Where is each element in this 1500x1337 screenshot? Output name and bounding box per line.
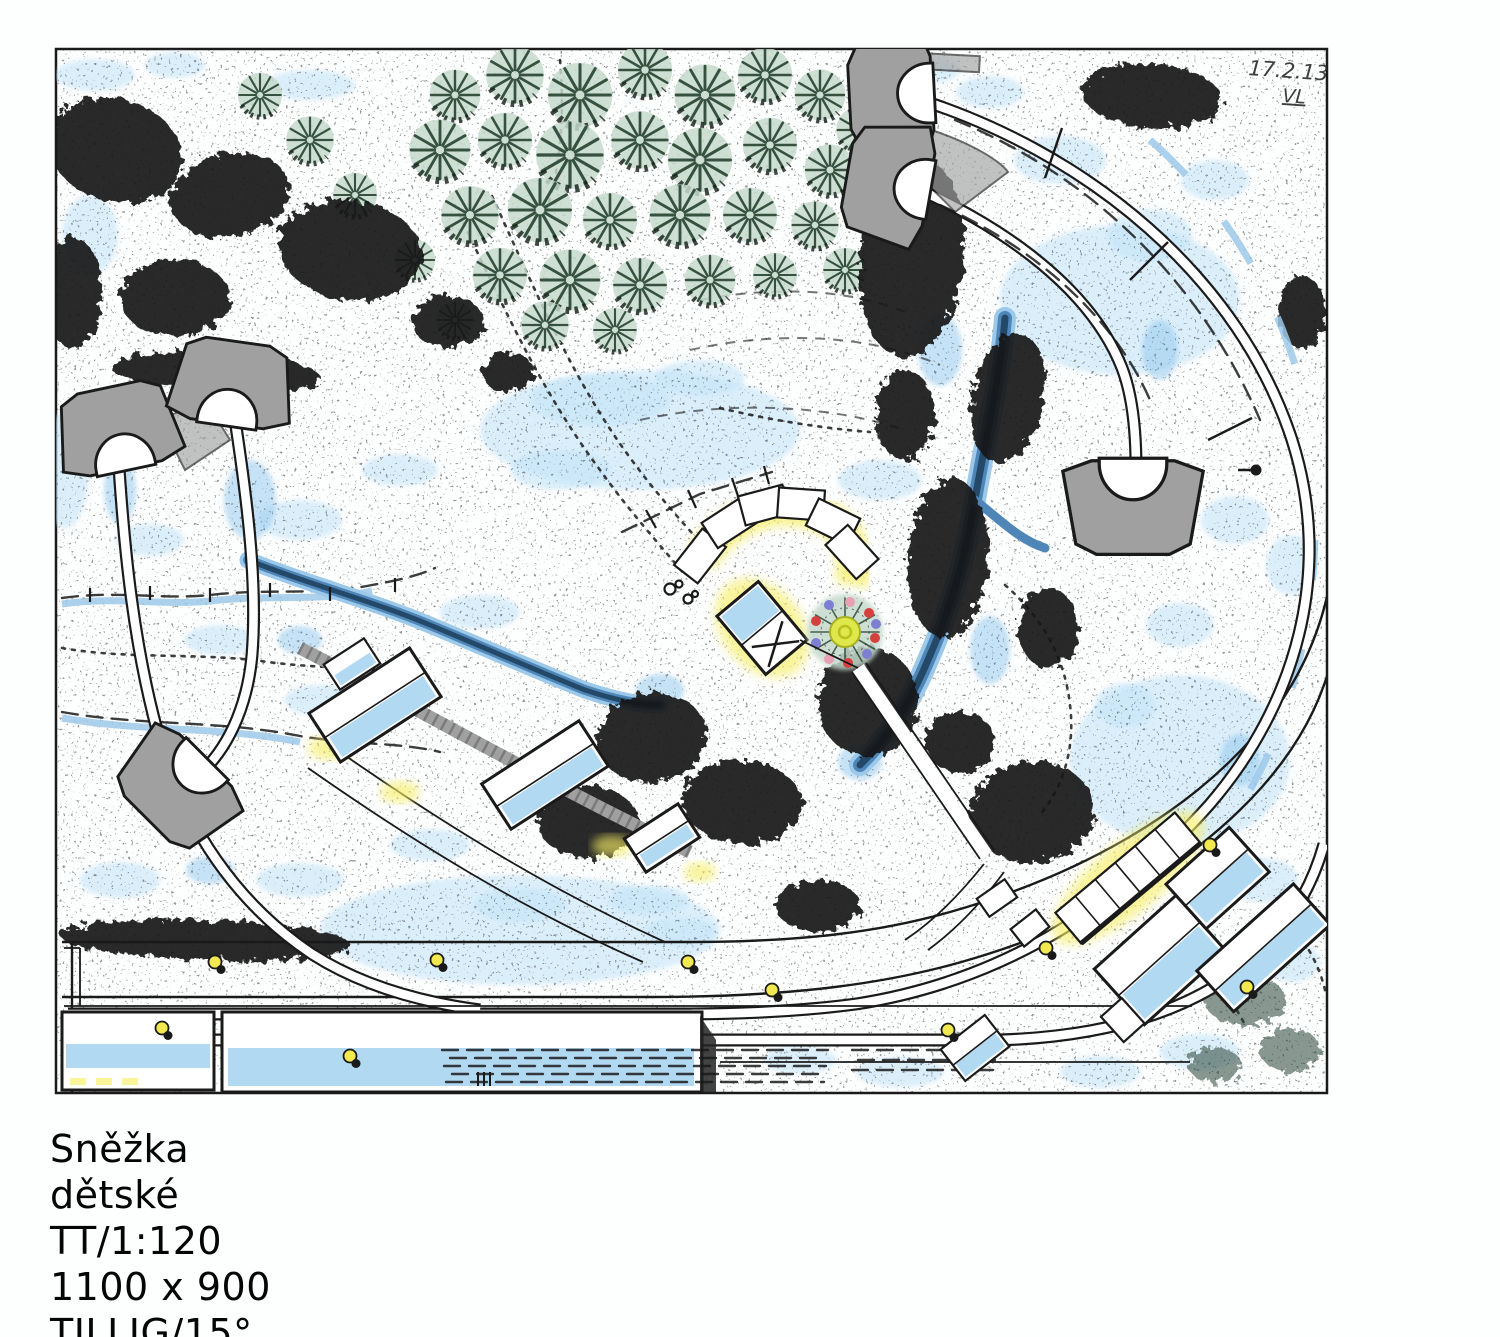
handwritten-initials: VL [1282,85,1307,109]
scanned-track-plan-page: 17.2.13 VL Sněžka dětské TT/1:120 1100 x… [0,0,1500,1337]
caption-scale: TT/1:120 [50,1218,271,1264]
caption-title: Sněžka [50,1126,271,1172]
caption: Sněžka dětské TT/1:120 1100 x 900 TILLIG… [50,1126,271,1337]
station-annex [62,1012,214,1090]
caption-track-system: TILLIG/15° [50,1310,271,1337]
tunnel-portal-right [1063,458,1203,554]
station-building [222,1012,716,1092]
christmas-tree [807,594,883,670]
caption-dimensions: 1100 x 900 [50,1264,271,1310]
caption-category: dětské [50,1172,271,1218]
